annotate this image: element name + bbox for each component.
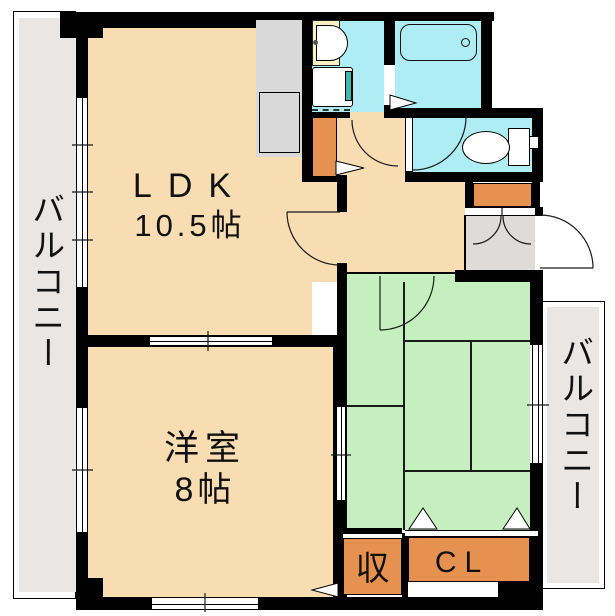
shoe-cabinet-door-arc-left: [473, 216, 501, 244]
storage-label: 収: [343, 549, 402, 590]
bathroom-door-triangle: [390, 95, 416, 110]
washroom-door-arc: [352, 120, 398, 166]
toilet-door-arc: [413, 117, 466, 170]
door-symbols-overlay: [0, 0, 615, 616]
storage-door-triangle: [312, 583, 338, 597]
closet-door-triangle: [503, 508, 530, 529]
balcony-left-label: バルコニー: [26, 192, 66, 372]
closet-label: CL: [408, 545, 516, 581]
western-room-label-line2: 8帖: [120, 470, 290, 511]
floorplan-canvas: LDK 10.5帖 洋室 8帖 収 CL バルコニー バルコニー: [0, 0, 615, 616]
window-tick: [72, 145, 93, 240]
ldk-label-line2: 10.5帖: [95, 207, 285, 244]
western-room-label: 洋室 8帖: [120, 428, 290, 511]
western-room-label-line1: 洋室: [120, 428, 290, 470]
shoe-cabinet-door-arc-right: [503, 216, 531, 244]
ldk-label: LDK 10.5帖: [95, 166, 285, 244]
front-door-arc: [540, 215, 593, 268]
ldk-label-line1: LDK: [95, 166, 285, 207]
balcony-right-label: バルコニー: [555, 335, 595, 515]
washroom-door-triangle: [336, 161, 364, 175]
tatami-door-arc: [380, 276, 434, 330]
ldk-door-arc: [287, 212, 340, 265]
closet-door-triangle: [409, 508, 437, 529]
